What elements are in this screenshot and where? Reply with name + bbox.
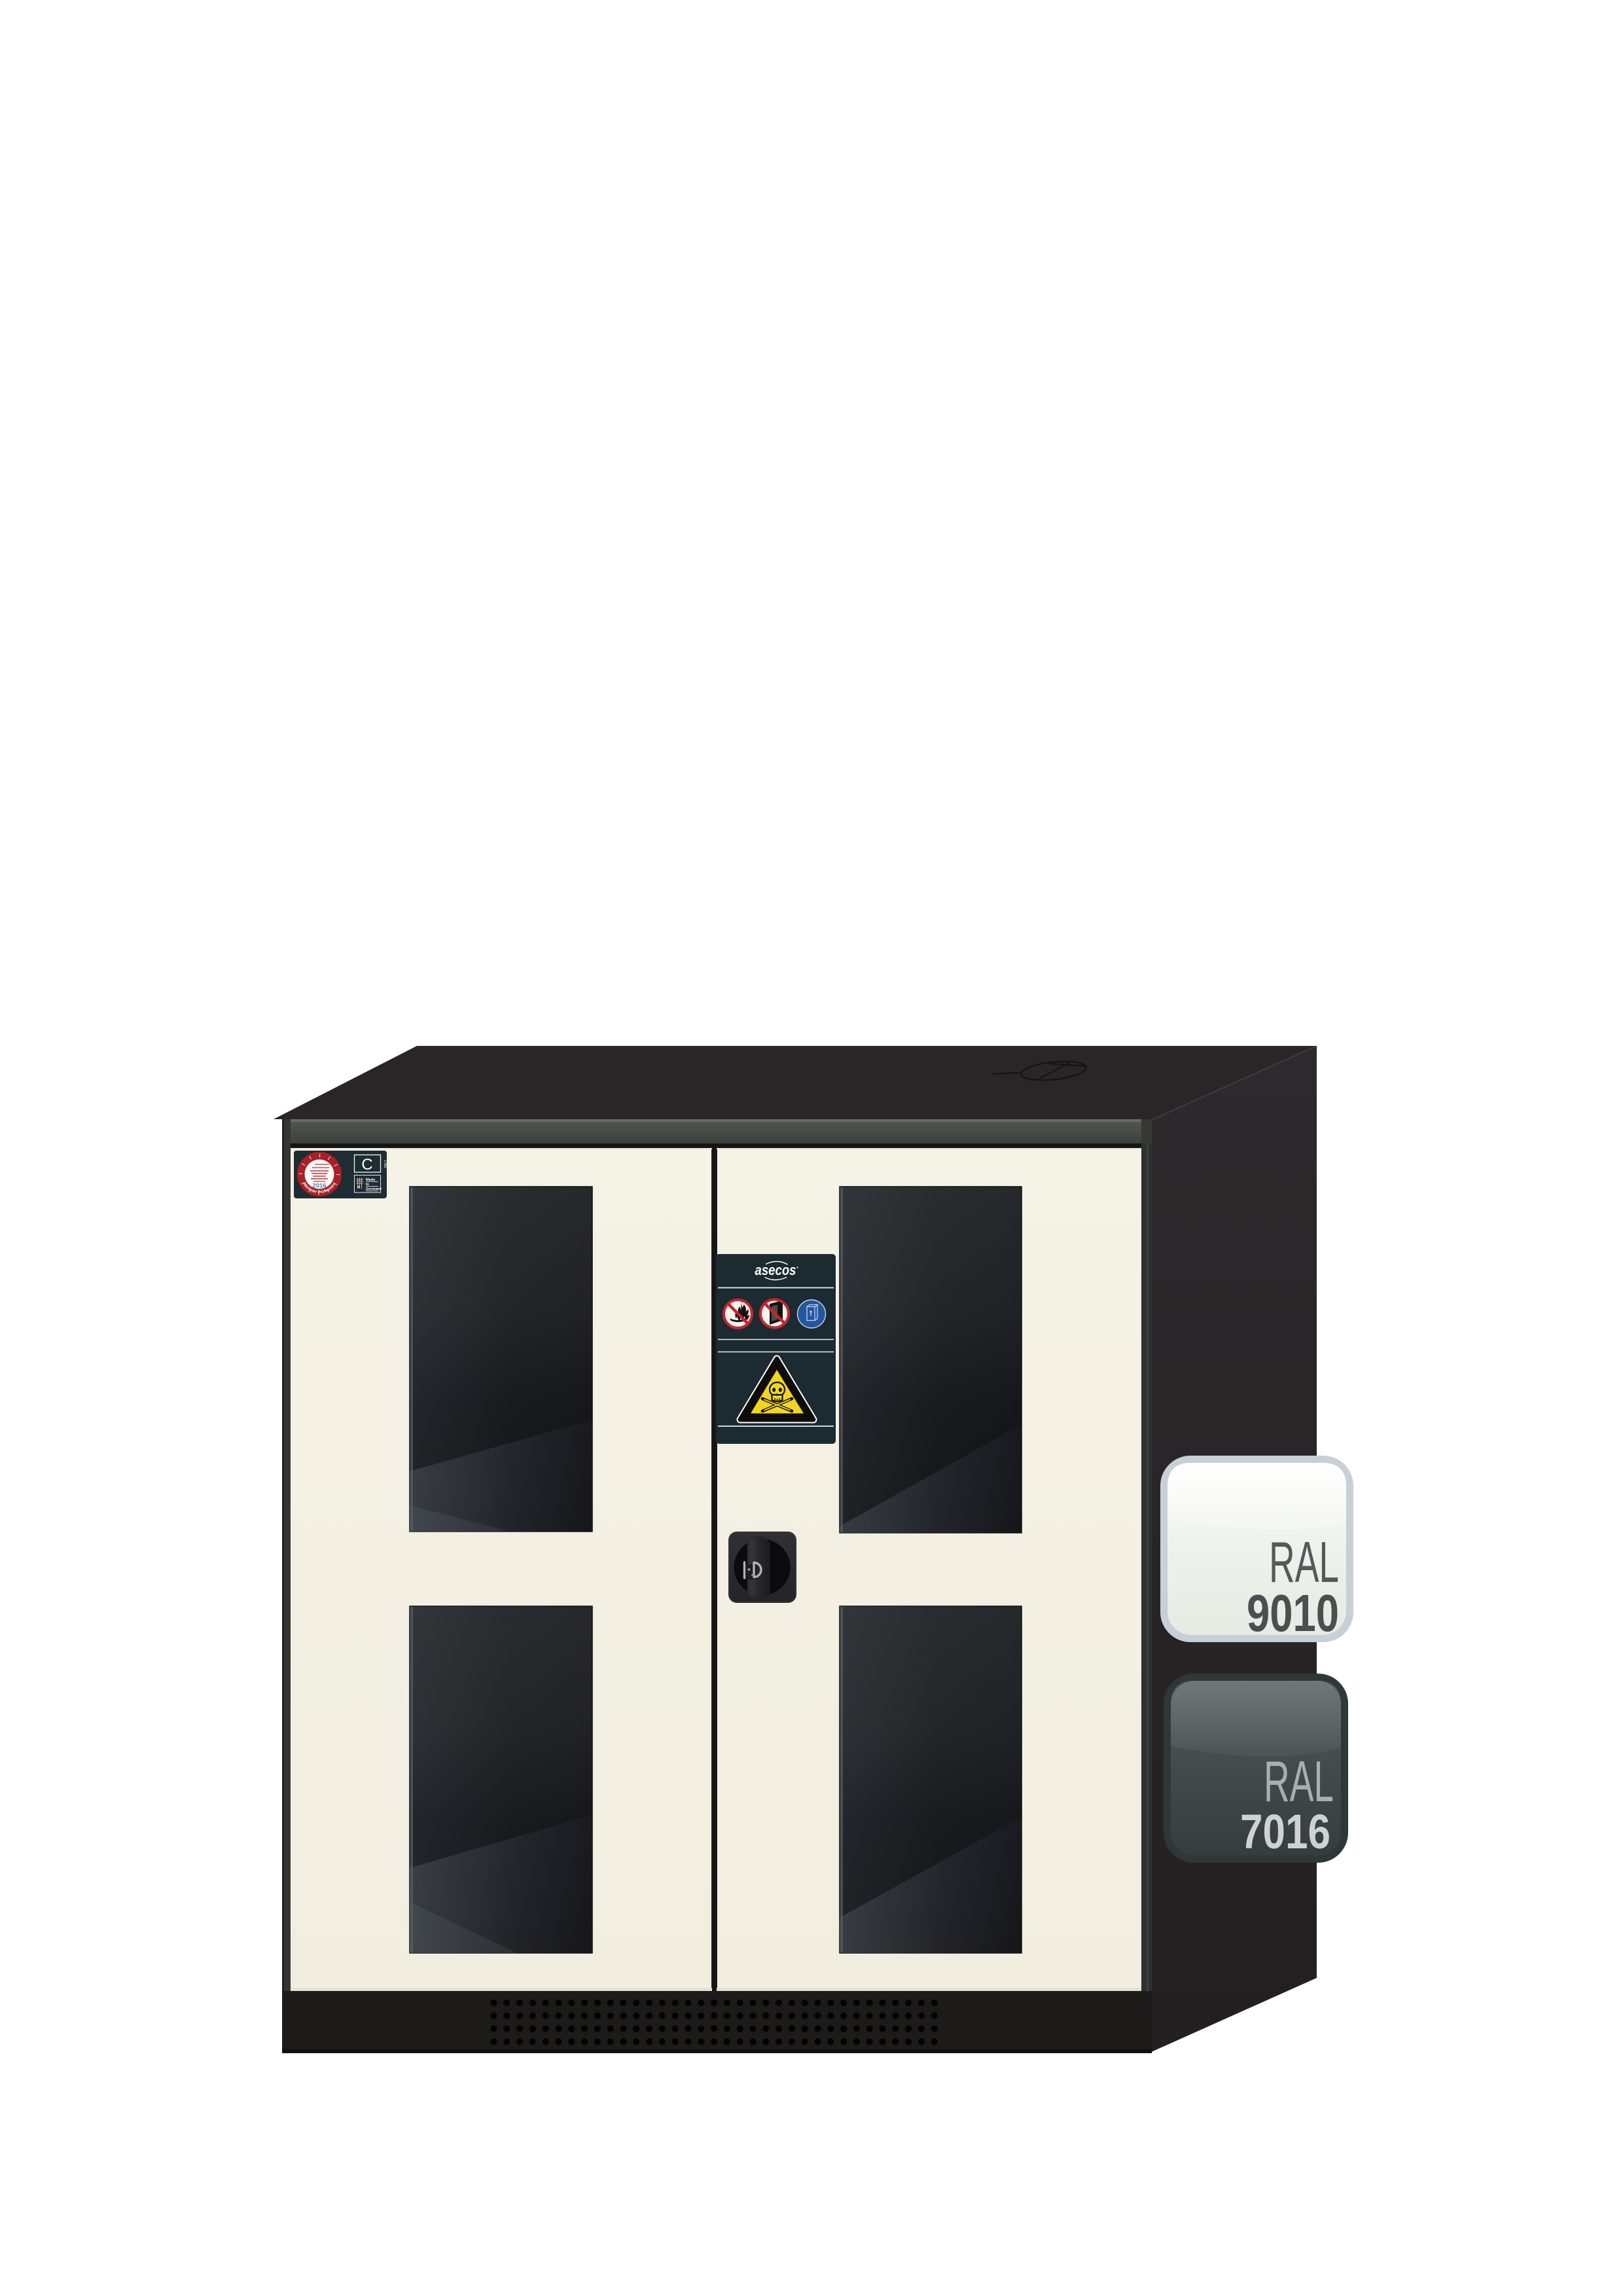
svg-text:Made: Made (366, 1178, 375, 1182)
svg-text:In: In (366, 1183, 370, 1187)
svg-text:9010: 9010 (1247, 1584, 1339, 1642)
svg-text:Germany: Germany (366, 1187, 382, 1191)
svg-text:7016: 7016 (1240, 1804, 1330, 1859)
svg-text:C: C (361, 1156, 372, 1174)
svg-text:asecos: asecos (755, 1262, 796, 1278)
svg-text:2016: 2016 (312, 1183, 326, 1190)
svg-text:LINE: LINE (383, 1160, 387, 1168)
